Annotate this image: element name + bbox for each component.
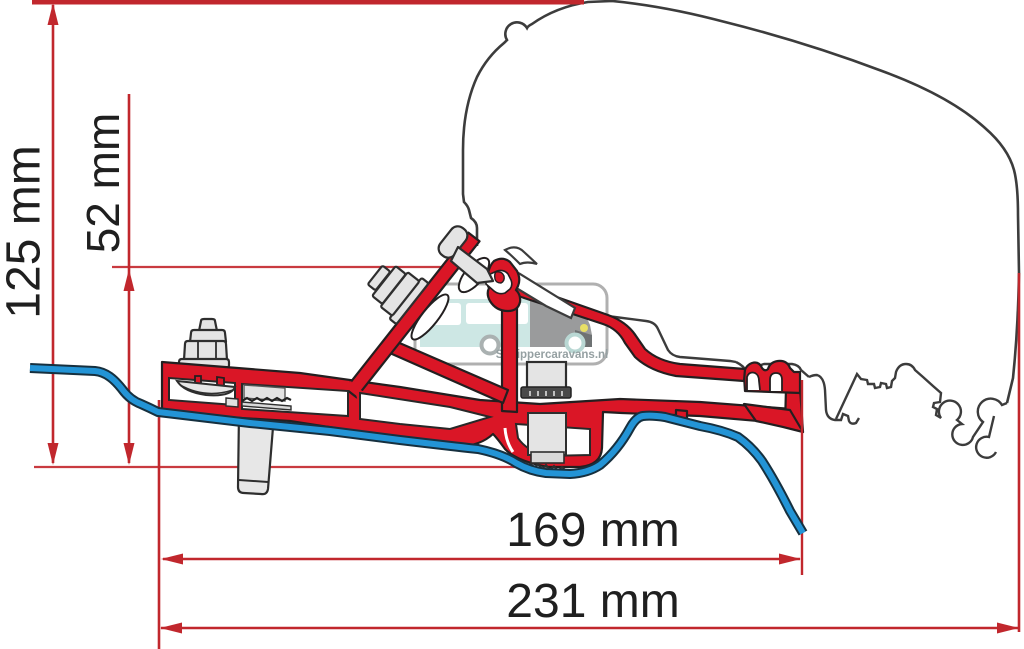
svg-text:231 mm: 231 mm <box>506 575 679 628</box>
svg-text:125 mm: 125 mm <box>0 145 51 318</box>
svg-text:169 mm: 169 mm <box>506 504 679 557</box>
svg-text:52 mm: 52 mm <box>77 113 129 254</box>
